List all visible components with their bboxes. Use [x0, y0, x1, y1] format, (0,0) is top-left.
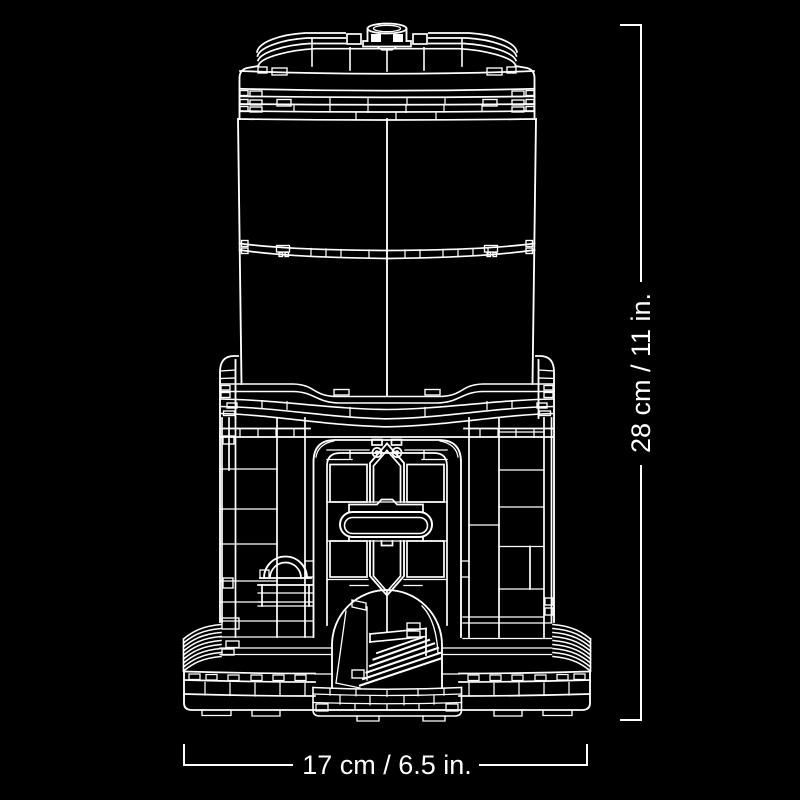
- svg-text:28 cm / 11 in.: 28 cm / 11 in.: [626, 293, 656, 453]
- svg-text:17 cm / 6.5 in.: 17 cm / 6.5 in.: [302, 750, 472, 780]
